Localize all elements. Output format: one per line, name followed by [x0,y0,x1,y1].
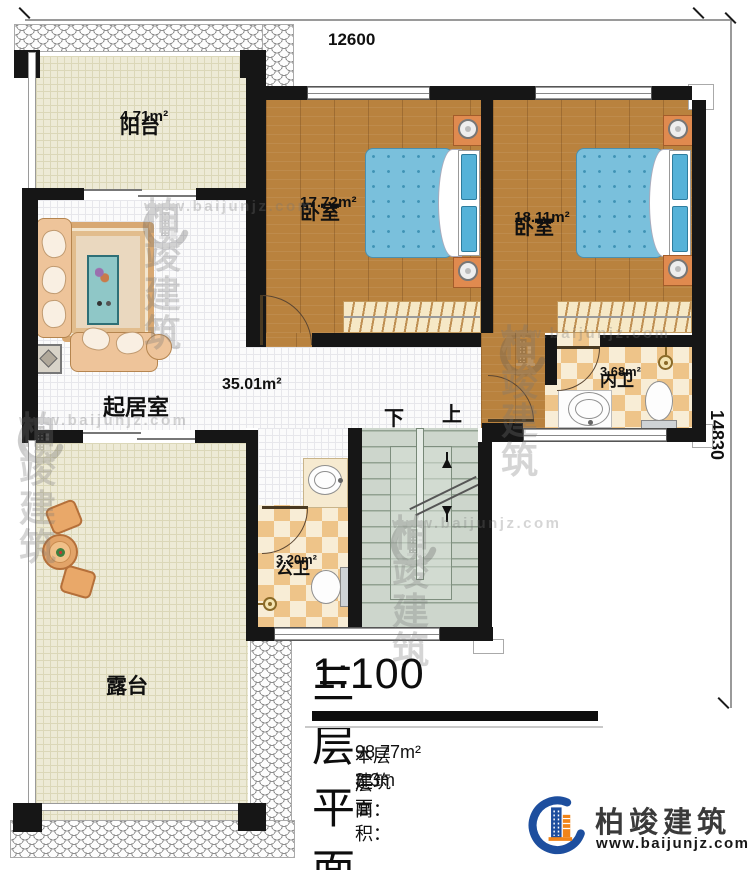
table-lamp [458,119,478,139]
window [535,86,652,100]
title-underline [312,711,598,721]
dimension-line-top [25,19,732,21]
wall-bedrooms-bottom [312,333,481,347]
window [307,86,430,100]
floor-drain [263,597,277,611]
title-underline-thin [305,726,603,728]
stairs-arrow-line [446,452,448,460]
brand-logo-icon [523,795,589,857]
wall-stairs-left [348,428,362,641]
door-leaf [488,419,534,422]
wall-notch [473,639,504,654]
wall-bath-bottom-right [667,428,694,442]
wall-vestibule-bottom [482,423,523,442]
stairs-arrow-line [446,514,448,522]
wall-bottom [440,627,493,641]
toilet-bowl [311,570,341,604]
window [274,627,440,641]
ceiling-lamp [658,355,673,370]
wall-outer-left [22,198,38,430]
bed-cushion [461,206,477,252]
dimension-line-right [730,20,732,708]
sliding-door [83,432,195,440]
sink-faucet [338,478,343,483]
table-lamp [668,259,688,279]
sofa-armrest [146,334,172,360]
wall-stairs-right [478,442,492,641]
bed-cushion [461,154,477,200]
toilet-bowl [645,381,673,421]
door-leaf [557,346,600,349]
sink-faucet [588,420,593,425]
stairs-up-label: 上 [442,398,462,427]
terrace-table [42,534,78,570]
terrace-railing-bottom [36,803,242,811]
wall-wardrobe-bath [600,335,692,347]
sink-inner [314,471,336,489]
wall-outer-right [692,100,706,442]
sliding-door [84,189,196,197]
wall-pillar [13,803,42,832]
wall-pillar [238,803,266,831]
stairs-down-label: 下 [384,402,404,431]
roof-tiles-terrace-side [250,640,292,826]
terrace-railing-left [28,440,36,805]
brand-url: www.baijunjz.com [596,835,749,852]
wall-pillar [240,50,266,78]
wall-pillar [14,50,40,78]
door-leaf [260,295,263,345]
wall-balcony-bottom [196,188,266,200]
balcony-railing-left [28,52,36,190]
door-leaf [262,506,308,509]
dimension-tick [18,7,30,19]
roof-tiles-top [14,24,266,52]
wall-vestibule-bath [545,335,557,385]
sink-inner [575,399,603,419]
wall-terrace-publicbath [246,430,258,641]
coffee-table [87,255,119,325]
dimension-tick [692,7,704,19]
floor-plan: 12600 14830 [0,0,750,870]
bed-cushion [672,206,688,252]
wardrobe [343,301,481,333]
brand-logo: 柏竣建筑 www.baijunjz.com [523,793,733,859]
bed-cushion [672,154,688,200]
table-lamp [458,261,478,281]
dimension-tick [717,697,729,709]
inner-bath-door-patch [557,333,600,347]
dimension-top-label: 12600 [328,30,375,50]
wall-terrace-top [195,430,258,443]
table-lamp [668,119,688,139]
wardrobe [557,301,692,333]
wall-bedroom-divider [481,100,493,333]
window [523,428,667,442]
